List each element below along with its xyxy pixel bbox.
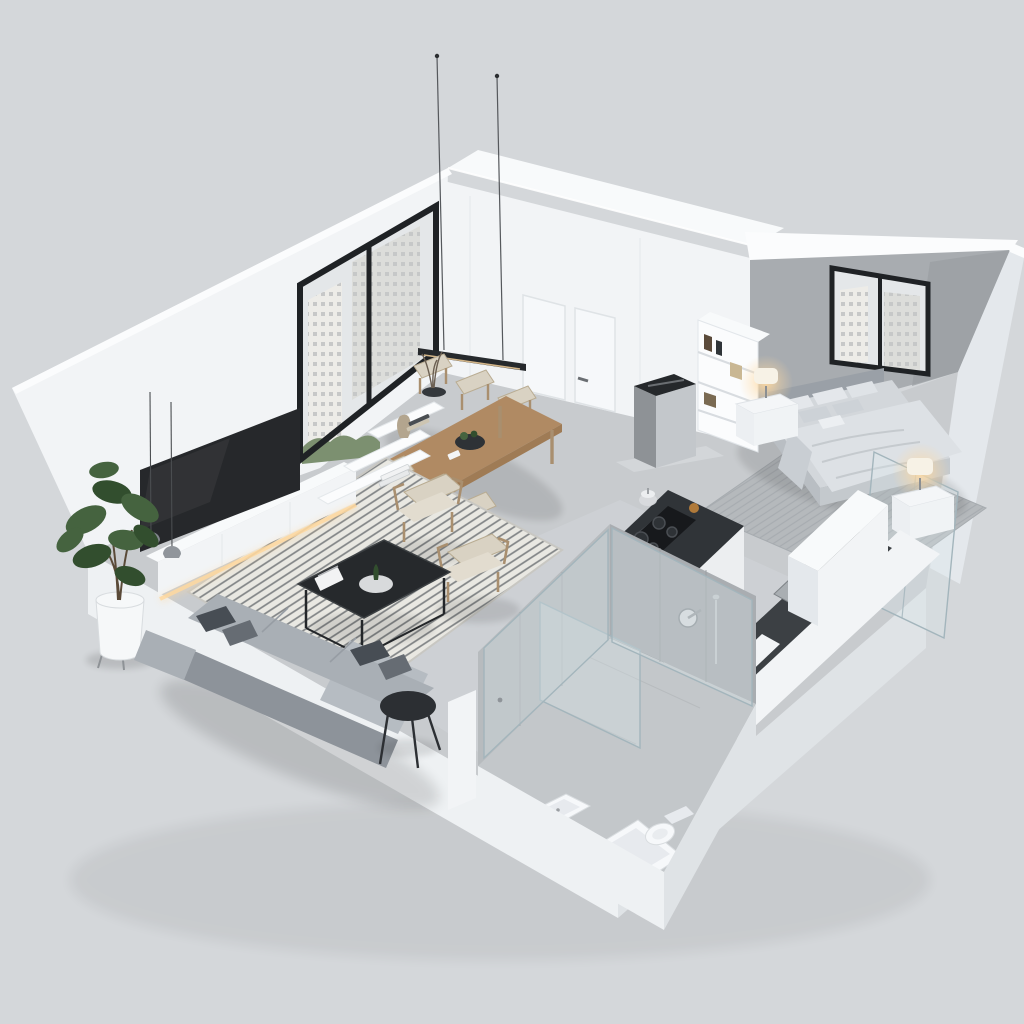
burner [653, 517, 665, 529]
floorplan-render [0, 0, 1024, 1024]
wire-anchor [435, 54, 439, 58]
vase-decor [397, 415, 411, 438]
table-lamp [754, 368, 778, 384]
bedroom-city-block-windows [884, 292, 920, 370]
bedroom-city-tower-windows [840, 286, 868, 364]
render-canvas [0, 0, 1024, 1024]
door-panel [575, 308, 615, 412]
fruit-bowl-item [689, 503, 699, 513]
books [704, 334, 712, 352]
bathroom-entry-wall [448, 690, 476, 810]
city-tower-windows [308, 282, 342, 452]
centerpiece-greenery [471, 431, 478, 438]
nightstand-right [892, 443, 954, 540]
planter [96, 600, 144, 660]
hood-side [634, 386, 656, 468]
door-panel [523, 295, 565, 400]
burner [667, 527, 677, 537]
centerpiece-bowl [455, 434, 485, 450]
flush-door-left [523, 295, 565, 400]
flush-door-right [575, 308, 615, 412]
bedroom-window [832, 268, 928, 374]
glass-door-hinge [498, 698, 503, 703]
table-lamp [907, 458, 933, 475]
centerpiece-greenery [460, 432, 468, 440]
wire-anchor [495, 74, 499, 78]
books [716, 340, 722, 356]
side-table-top [380, 691, 436, 721]
hood-front [656, 384, 696, 468]
